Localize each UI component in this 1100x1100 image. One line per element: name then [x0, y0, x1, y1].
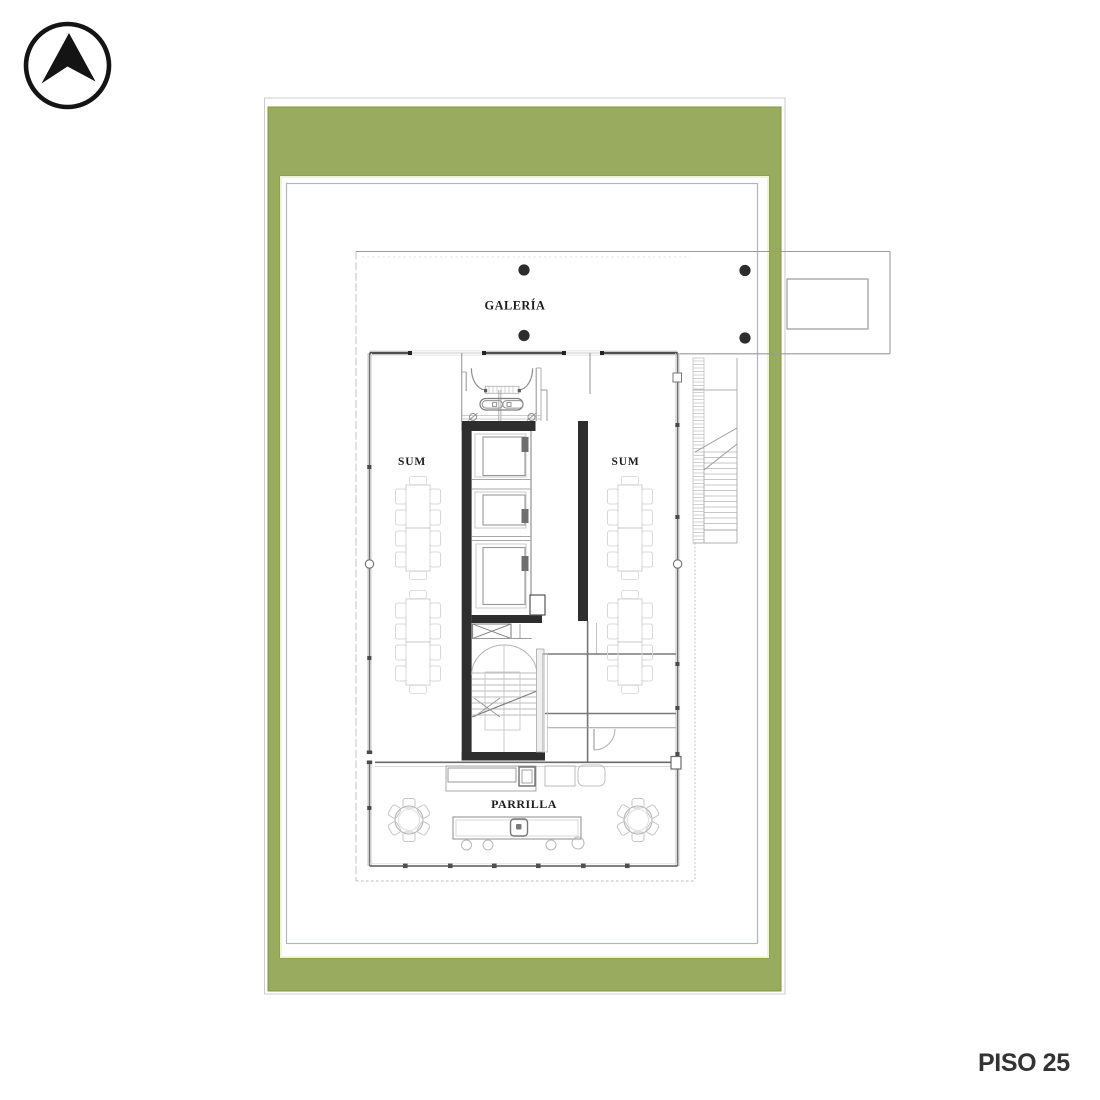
svg-text:SUM: SUM — [612, 456, 640, 468]
svg-text:GALERÍA: GALERÍA — [485, 299, 546, 313]
svg-text:PARRILLA: PARRILLA — [491, 797, 557, 811]
svg-text:PISO 25: PISO 25 — [978, 1049, 1070, 1077]
svg-text:SUM: SUM — [398, 456, 426, 468]
